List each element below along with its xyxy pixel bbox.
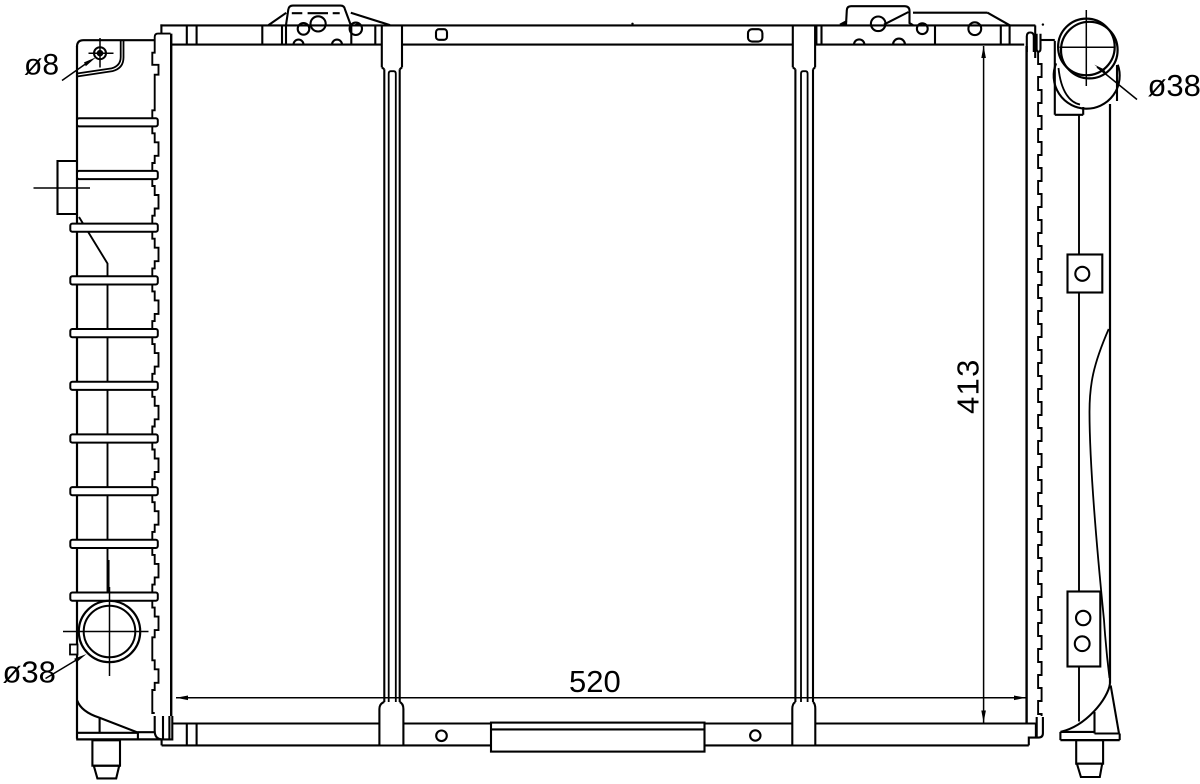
svg-text:413: 413 xyxy=(951,358,986,414)
svg-text:ø38: ø38 xyxy=(3,655,56,690)
svg-text:520: 520 xyxy=(569,664,621,699)
svg-text:ø8: ø8 xyxy=(24,49,59,82)
svg-text:ø38: ø38 xyxy=(1148,68,1200,103)
